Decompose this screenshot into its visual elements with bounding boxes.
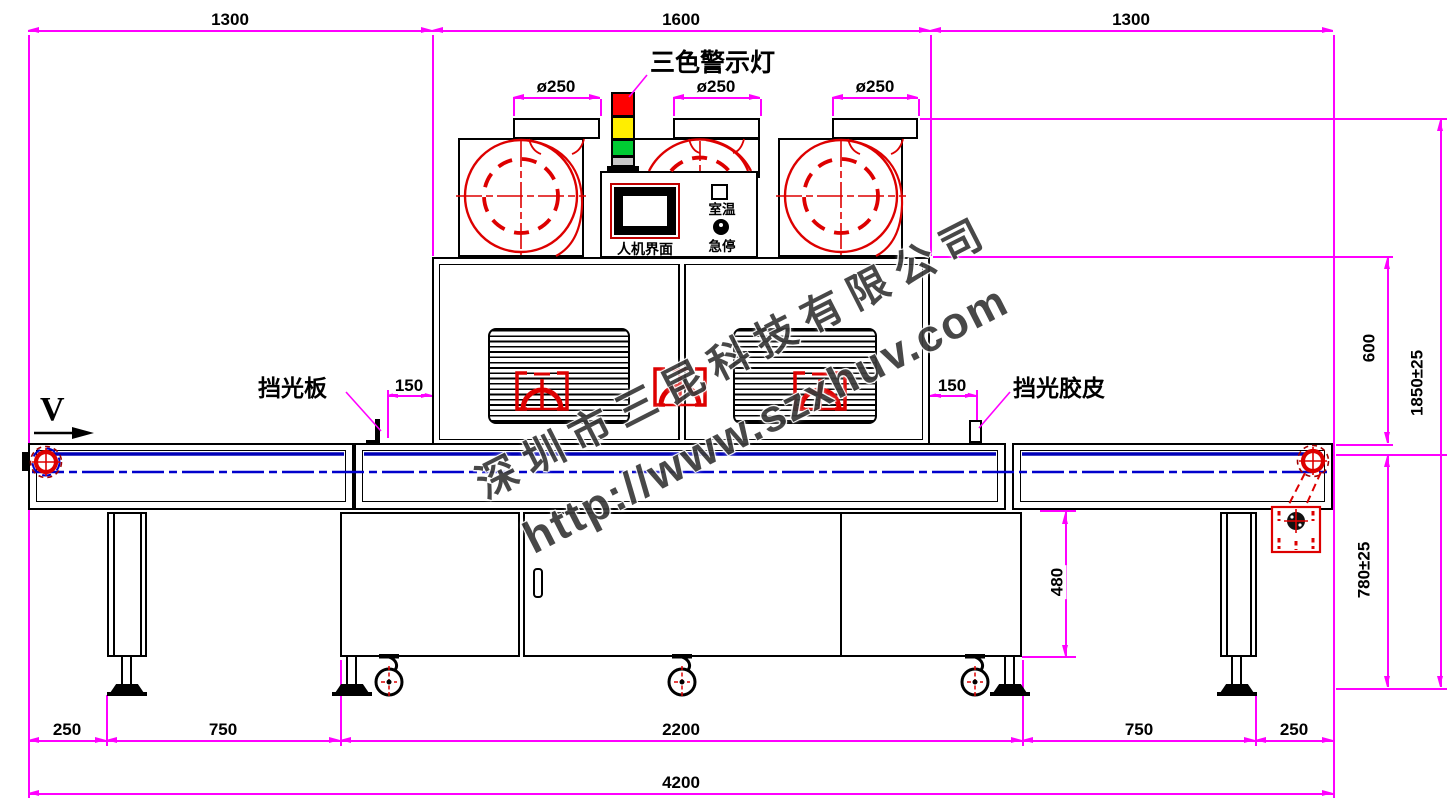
arrow <box>589 94 600 100</box>
arrow <box>832 94 843 100</box>
arrow <box>1384 432 1390 443</box>
blower-housing-left <box>458 138 584 257</box>
arrow <box>421 27 432 33</box>
dim-cabinet-height: 480 <box>1048 565 1067 599</box>
leveling-foot <box>121 657 132 684</box>
leveling-foot <box>1231 657 1242 684</box>
ext-dia-2 <box>600 99 602 116</box>
dim-plate-left: 150 <box>393 377 425 394</box>
technical-drawing-canvas: 1300 1600 1300 ø250 ø250 ø250 150 150 60… <box>0 0 1453 811</box>
leg-wall <box>140 514 142 655</box>
cabinet-panel-divider <box>840 512 842 657</box>
tower-light-green <box>611 139 635 157</box>
leg-wall <box>1250 514 1252 655</box>
dim-bottom-3: 2200 <box>660 721 702 738</box>
dim-top-right: 1300 <box>1110 11 1152 28</box>
leveling-foot <box>1004 657 1015 684</box>
ext-line-cab480-top <box>1040 510 1076 512</box>
dim-bottom-4: 750 <box>1123 721 1155 738</box>
dim-belt-height: 780±25 <box>1355 539 1374 602</box>
arrow <box>1322 737 1333 743</box>
arrow <box>28 27 39 33</box>
estop-highlight <box>719 223 723 227</box>
leg-wall <box>113 514 115 655</box>
caster-wheel <box>953 654 997 705</box>
arrow <box>1384 456 1390 467</box>
arrow <box>340 737 351 743</box>
ext-line-chamber-left <box>432 35 434 256</box>
caster-wheel <box>367 654 411 705</box>
duct-flange-mid <box>673 118 760 139</box>
tower-light-label: 三色警示灯 <box>650 51 775 76</box>
arrow <box>28 737 39 743</box>
dim-line-total <box>28 793 1333 795</box>
arrow <box>907 94 918 100</box>
arrow <box>673 94 684 100</box>
dim-bottom-2: 750 <box>207 721 239 738</box>
shade-plate-foot <box>366 440 380 443</box>
arrow <box>1384 676 1390 687</box>
ext-line-belt-top <box>1336 444 1393 446</box>
dim-top-left: 1300 <box>209 11 251 28</box>
arrow <box>513 94 524 100</box>
leveling-foot-pad <box>332 692 372 696</box>
dim-line-bottom-chain <box>28 740 1333 742</box>
leveling-foot-pad <box>1217 692 1257 696</box>
emergency-stop-label: 急停 <box>709 240 736 254</box>
caster-wheel <box>660 654 704 705</box>
dim-flange-left: ø250 <box>535 78 578 95</box>
arrow <box>1322 27 1333 33</box>
leveling-foot <box>346 657 357 684</box>
dim-total-length: 4200 <box>660 774 702 791</box>
arrow <box>1062 645 1068 656</box>
leg-wall <box>1226 514 1228 655</box>
arrow <box>930 27 941 33</box>
dim-bottom-5: 250 <box>1278 721 1310 738</box>
arrow <box>1255 737 1266 743</box>
dim-flange-right: ø250 <box>854 78 897 95</box>
ext-line-cabinet-right <box>1022 660 1024 746</box>
shade-rubber-part <box>969 420 982 443</box>
ext-line-cabinet-left <box>340 660 342 746</box>
room-temp-indicator <box>711 184 728 200</box>
dim-line-dia-right <box>832 97 918 99</box>
dim-line-600 <box>1387 257 1389 443</box>
dim-line-dia-mid <box>673 97 760 99</box>
emergency-stop-button[interactable] <box>713 219 729 235</box>
dim-flange-mid: ø250 <box>695 78 738 95</box>
shade-plate-label: 挡光板 <box>258 377 327 400</box>
room-temp-label: 室温 <box>709 203 736 217</box>
ext-line-right-overall <box>1333 35 1335 798</box>
arrow <box>329 737 340 743</box>
ext-dia-1 <box>513 99 515 116</box>
shade-rubber-label: 挡光胶皮 <box>1013 377 1105 400</box>
blower-housing-right <box>778 138 903 257</box>
arrow <box>1062 513 1068 524</box>
dim-total-height: 1850±25 <box>1408 347 1427 419</box>
ext-dia-3 <box>673 99 675 116</box>
dim-line-dia-left <box>513 97 600 99</box>
arrow <box>1322 790 1333 796</box>
tower-light-yellow <box>611 116 635 140</box>
belt-direction-label: V <box>40 393 65 427</box>
roller-shaft-block <box>22 452 30 471</box>
ext-dia-6 <box>918 99 920 116</box>
arrow <box>1244 737 1255 743</box>
arrow <box>1384 258 1390 269</box>
dim-bottom-1: 250 <box>51 721 83 738</box>
arrow <box>432 27 443 33</box>
ext-line-left-overall <box>28 35 30 798</box>
ext-line-belt-top2 <box>1336 454 1447 456</box>
arrow <box>106 737 117 743</box>
conveyor-left-inner <box>36 450 346 502</box>
ext-dia-4 <box>760 99 762 116</box>
dim-chamber-height: 600 <box>1360 331 1379 365</box>
dim-plate-right: 150 <box>936 377 968 394</box>
hmi-label: 人机界面 <box>617 242 673 256</box>
arrow <box>919 27 930 33</box>
arrow <box>95 737 106 743</box>
dim-line-top <box>28 30 1333 32</box>
arrow <box>1437 120 1443 131</box>
tower-light-stand <box>607 166 639 172</box>
duct-flange-left <box>513 118 600 139</box>
arrow <box>1437 676 1443 687</box>
duct-flange-right <box>832 118 918 139</box>
dim-line-1850 <box>1440 119 1442 687</box>
arrow <box>28 790 39 796</box>
leveling-foot-pad <box>107 692 147 696</box>
direction-arrow <box>34 427 94 439</box>
tower-light-red <box>611 92 635 117</box>
dim-top-mid: 1600 <box>660 11 702 28</box>
arrow <box>1022 737 1033 743</box>
conveyor-right-inner <box>1020 450 1325 502</box>
ext-dia-5 <box>832 99 834 116</box>
drive-motor <box>1272 507 1320 552</box>
arrow <box>1011 737 1022 743</box>
arrow <box>749 94 760 100</box>
dim-line-780 <box>1387 455 1389 687</box>
ext-line-cab480-bottom <box>1022 656 1076 658</box>
hmi-screen[interactable] <box>623 196 667 226</box>
ext-line-ground <box>1336 688 1447 690</box>
ext-line-total-height-top <box>920 118 1447 120</box>
